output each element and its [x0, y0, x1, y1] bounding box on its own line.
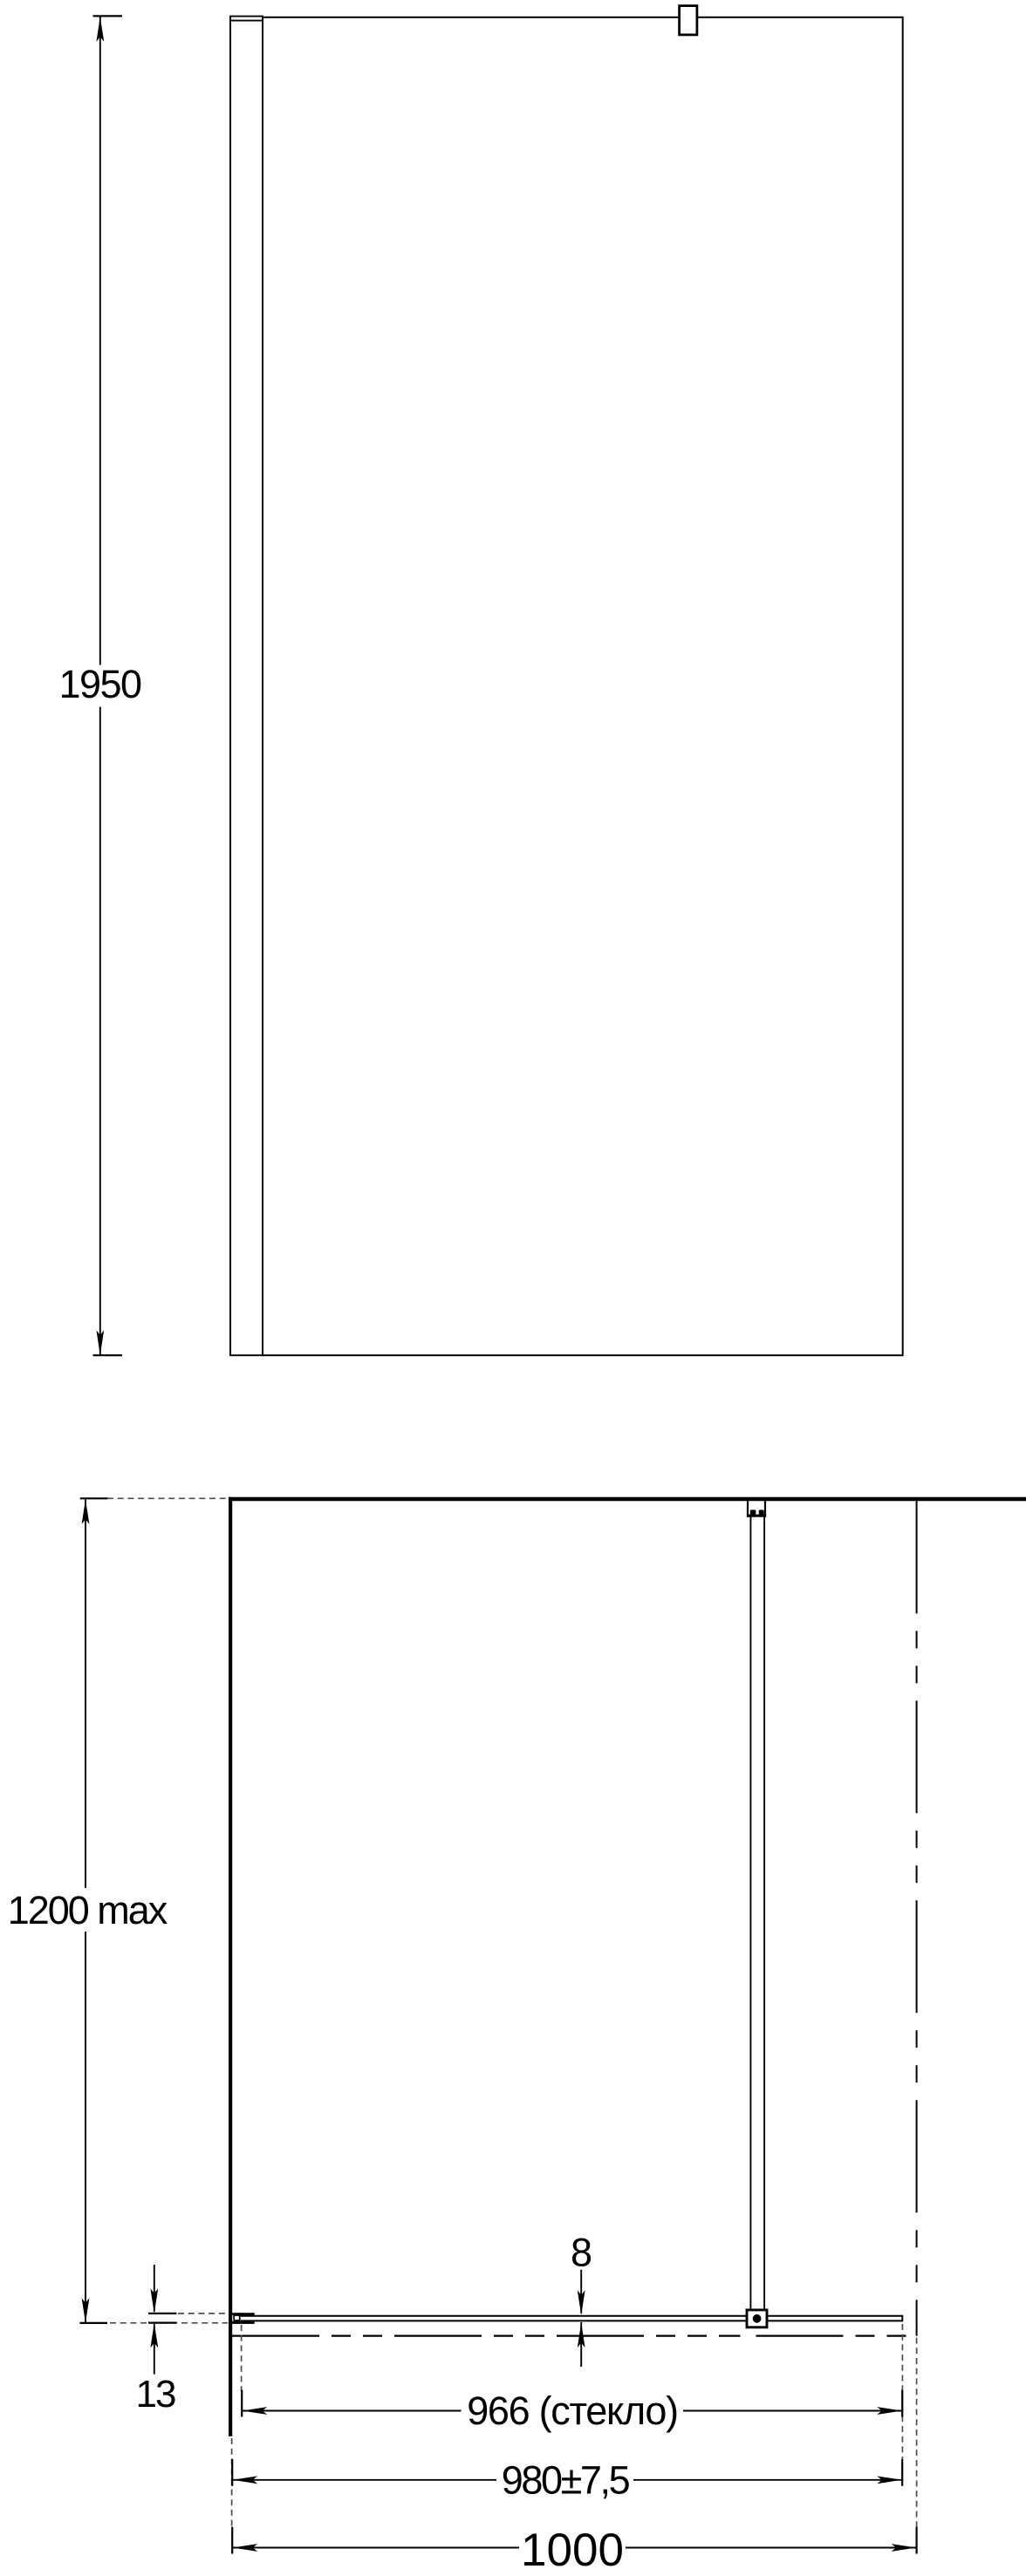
svg-text:1200 max: 1200 max [8, 1888, 168, 1932]
svg-text:1000: 1000 [521, 2525, 624, 2576]
svg-text:1950: 1950 [58, 662, 141, 706]
svg-text:13: 13 [136, 2373, 175, 2416]
svg-text:980±7,5: 980±7,5 [502, 2458, 630, 2503]
svg-text:8: 8 [571, 2231, 592, 2275]
svg-text:966 (стекло): 966 (стекло) [467, 2389, 678, 2433]
